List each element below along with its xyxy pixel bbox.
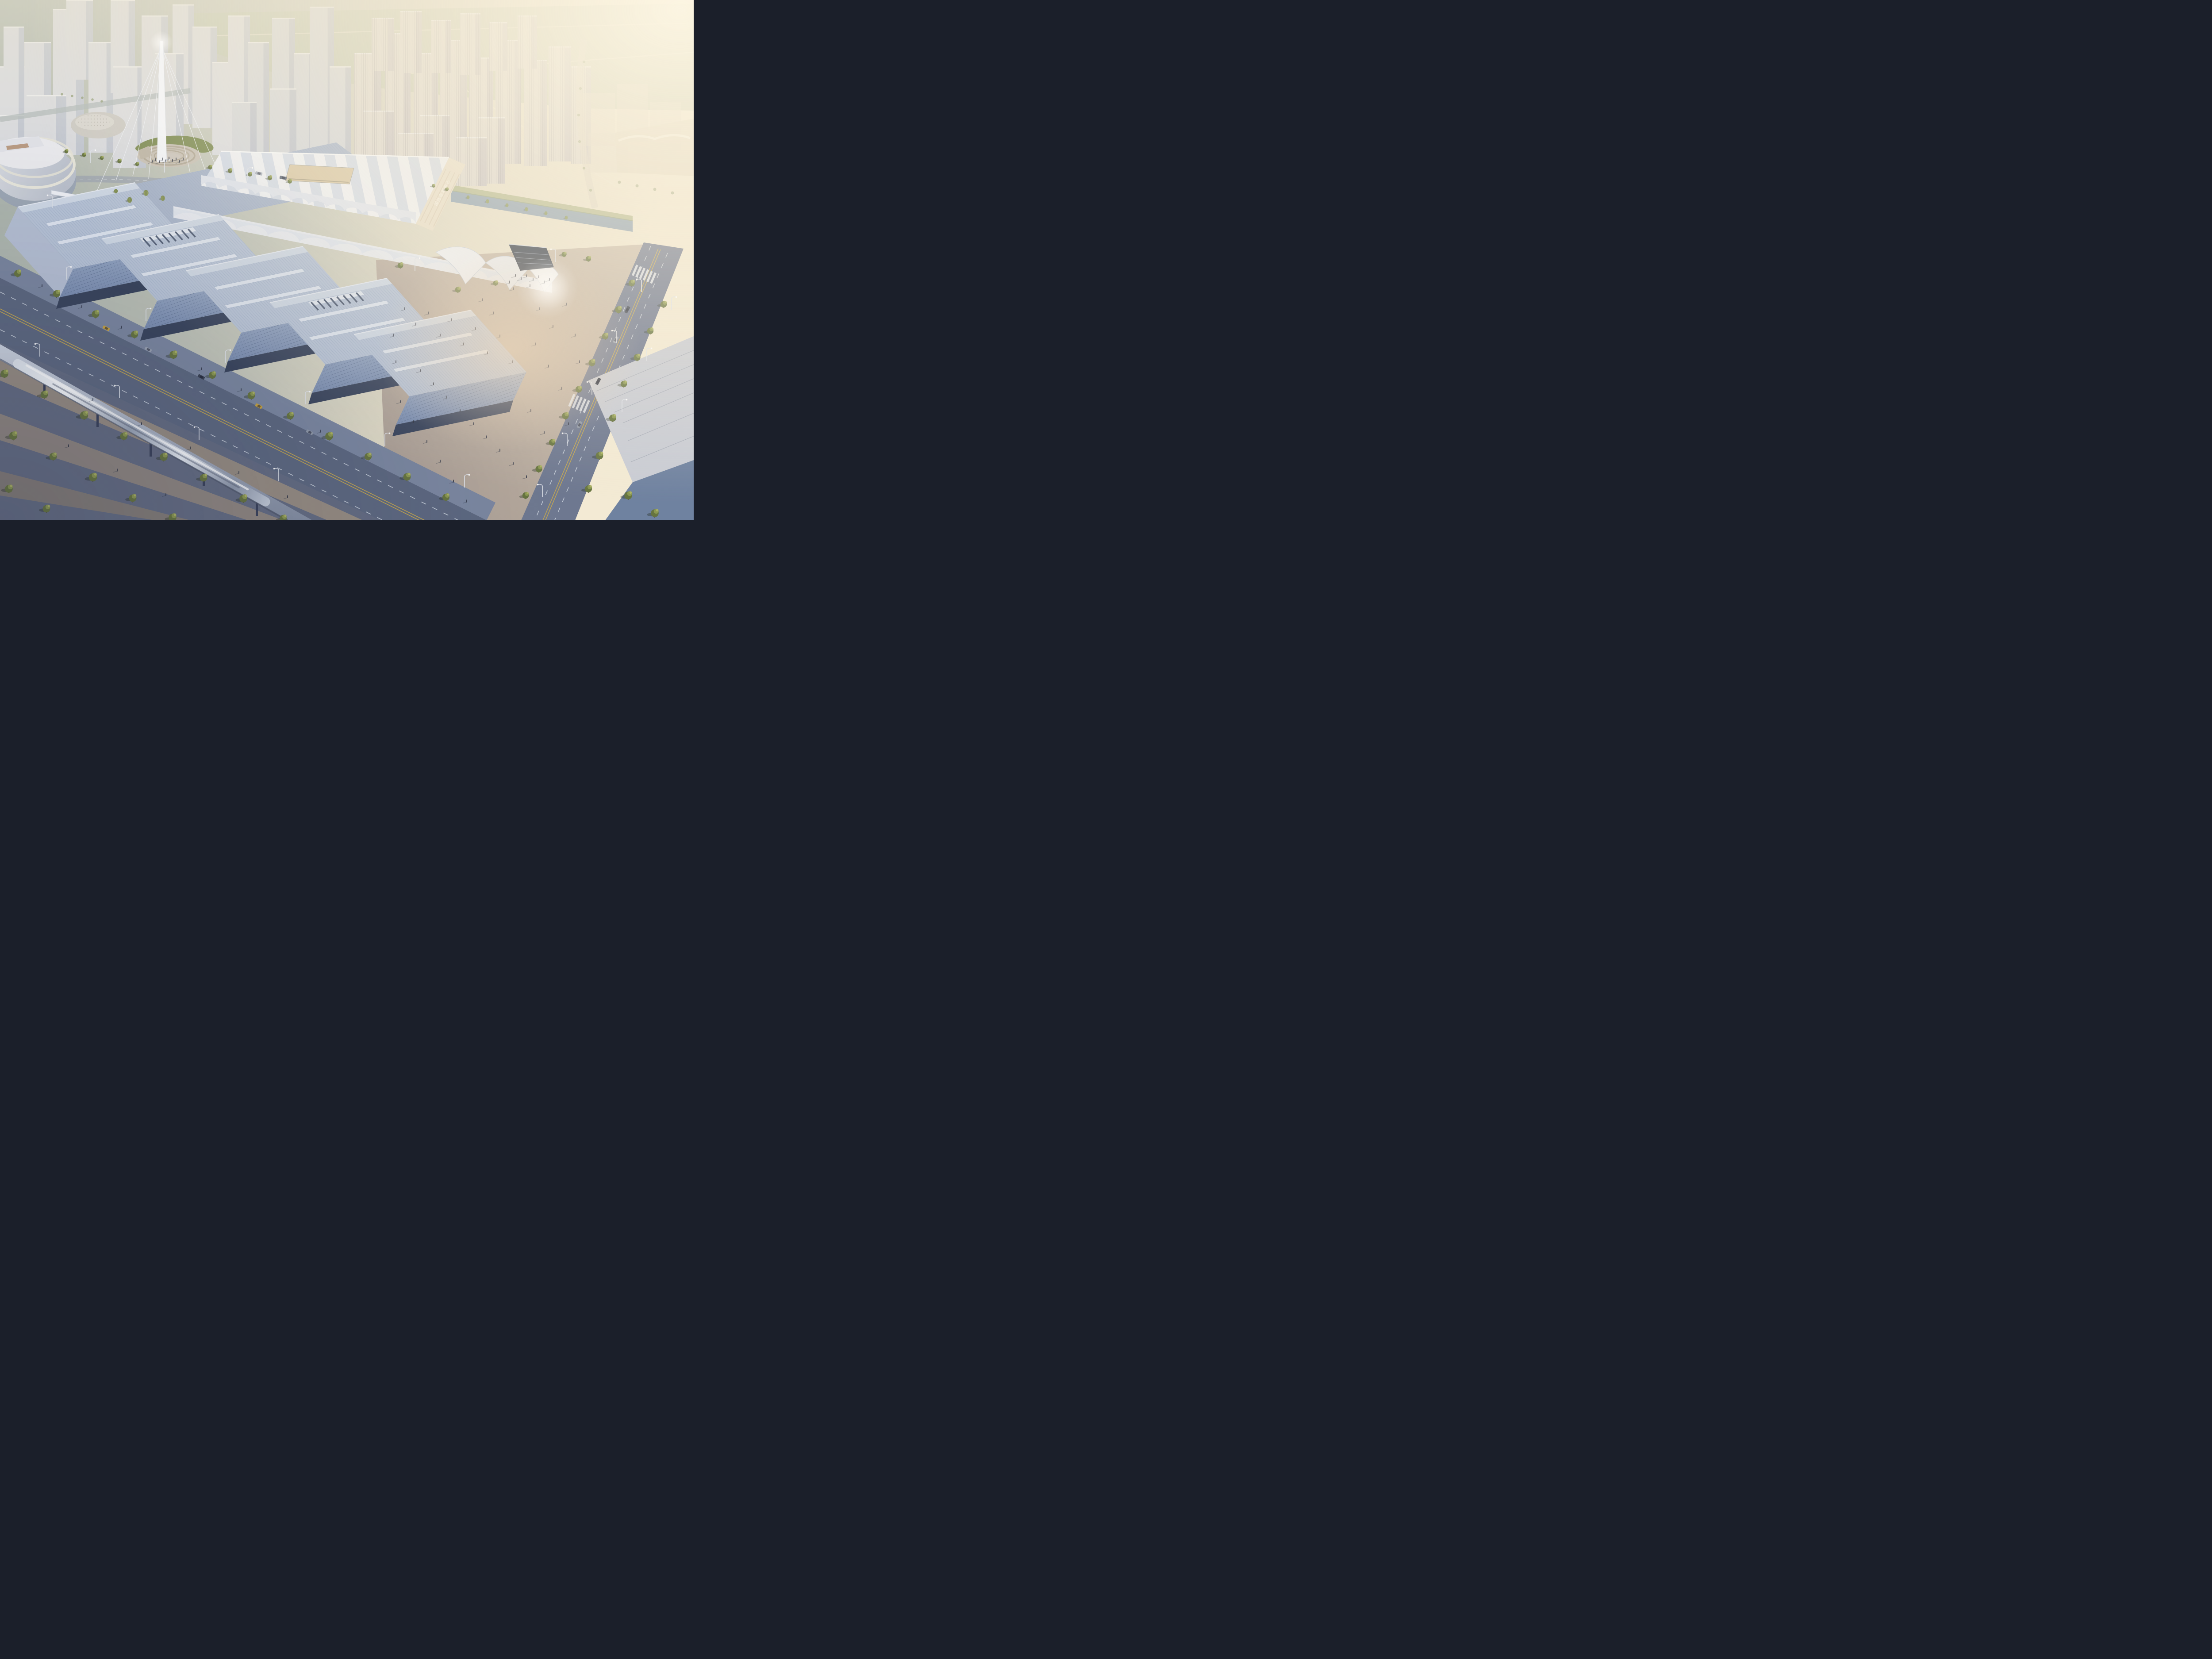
atmosphere xyxy=(0,0,694,520)
architectural-rendering: 国际会展中心 xyxy=(0,0,694,520)
corner-shade xyxy=(0,0,694,520)
aerial-city-rendering: 国际会展中心 xyxy=(0,0,694,520)
